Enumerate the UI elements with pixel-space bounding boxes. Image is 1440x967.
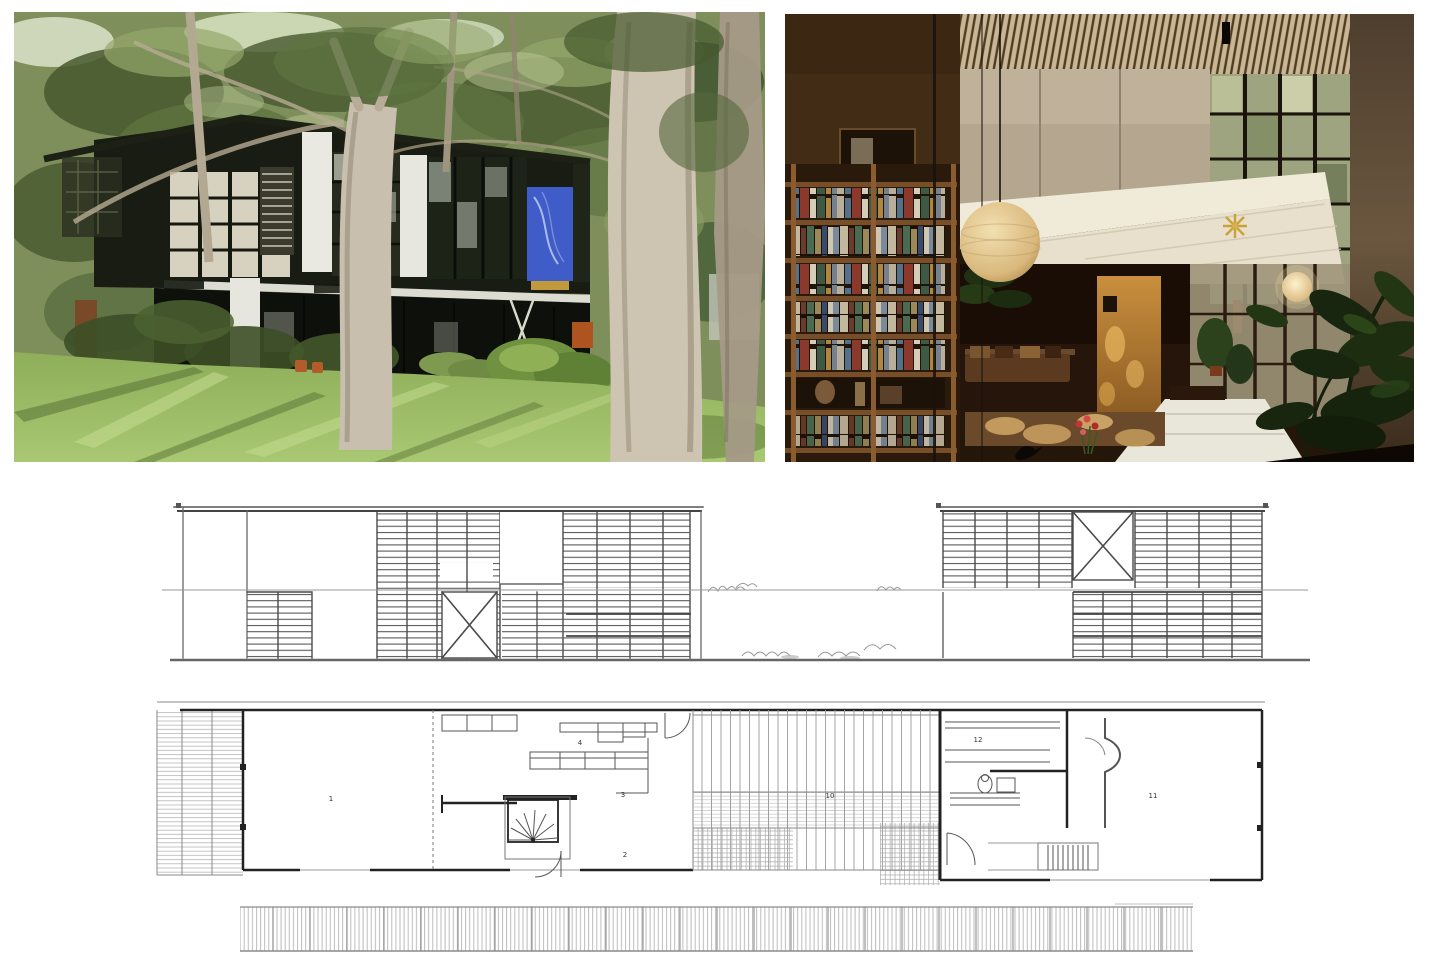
plan-courtyard [693, 710, 940, 885]
elevation-house-block [174, 503, 703, 658]
exterior-photo [14, 12, 765, 462]
room-label-12: 12 [974, 736, 983, 744]
spiral-stair [505, 797, 570, 859]
room-label-2: 2 [623, 851, 627, 859]
elevation-studio-block [936, 503, 1269, 658]
orange-panel [572, 322, 593, 348]
steel-column [933, 14, 936, 462]
page-canvas: 1 2 3 4 10 11 12 [0, 0, 1440, 967]
site-strip-art [235, 903, 1200, 955]
sofa [965, 354, 1070, 382]
banner-gold-strip [531, 281, 569, 290]
terracotta-pot [312, 362, 323, 373]
bathroom-fixtures [945, 718, 1120, 828]
floor-plan-art: 1 2 3 4 10 11 12 [150, 698, 1270, 888]
vegetation-sketch [708, 583, 901, 660]
room-label-11: 11 [1149, 792, 1158, 800]
exterior-photo-art [14, 12, 765, 462]
room-label-3: 3 [621, 791, 625, 799]
room-label-1: 1 [329, 795, 333, 803]
site-hatch [240, 904, 1193, 951]
plan-studio [940, 710, 1263, 880]
sun-star [1223, 214, 1247, 238]
site-strip [235, 903, 1200, 955]
elevation-art [150, 500, 1310, 670]
white-panel [302, 132, 332, 272]
globe-lamp [1282, 272, 1312, 302]
studio-stair [988, 843, 1098, 870]
elevation-drawing [150, 500, 1310, 670]
room-label-10: 10 [826, 792, 835, 800]
white-panel [400, 155, 427, 277]
floor-plan: 1 2 3 4 10 11 12 [150, 698, 1270, 888]
room-label-4: 4 [578, 739, 583, 747]
terracotta-pot [295, 360, 307, 372]
blue-banner [527, 187, 573, 290]
interior-photo [785, 14, 1414, 462]
interior-photo-art [785, 14, 1414, 462]
plan-terrace [157, 710, 243, 875]
downlight [1222, 22, 1230, 44]
